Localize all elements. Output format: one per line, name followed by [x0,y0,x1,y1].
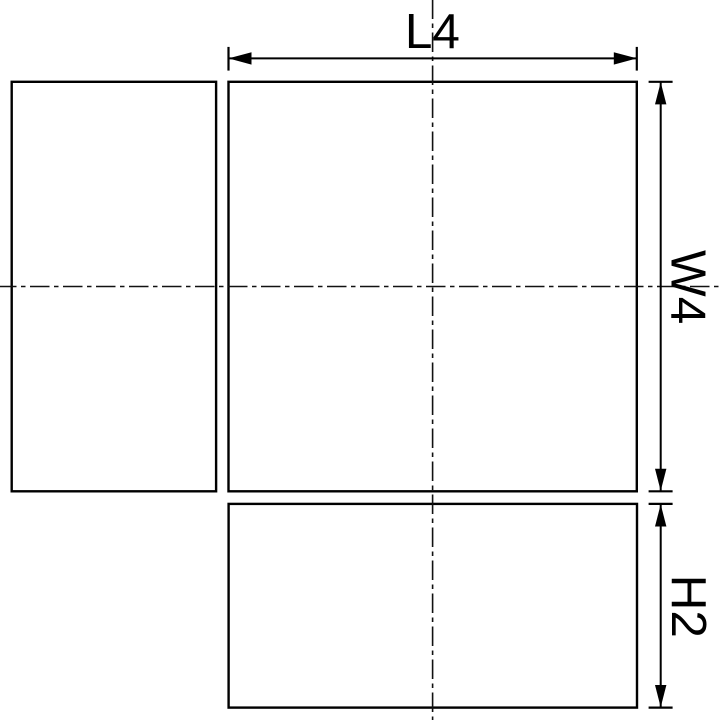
svg-text:W4: W4 [661,250,716,324]
svg-text:L4: L4 [405,4,460,59]
svg-text:H2: H2 [661,575,716,638]
